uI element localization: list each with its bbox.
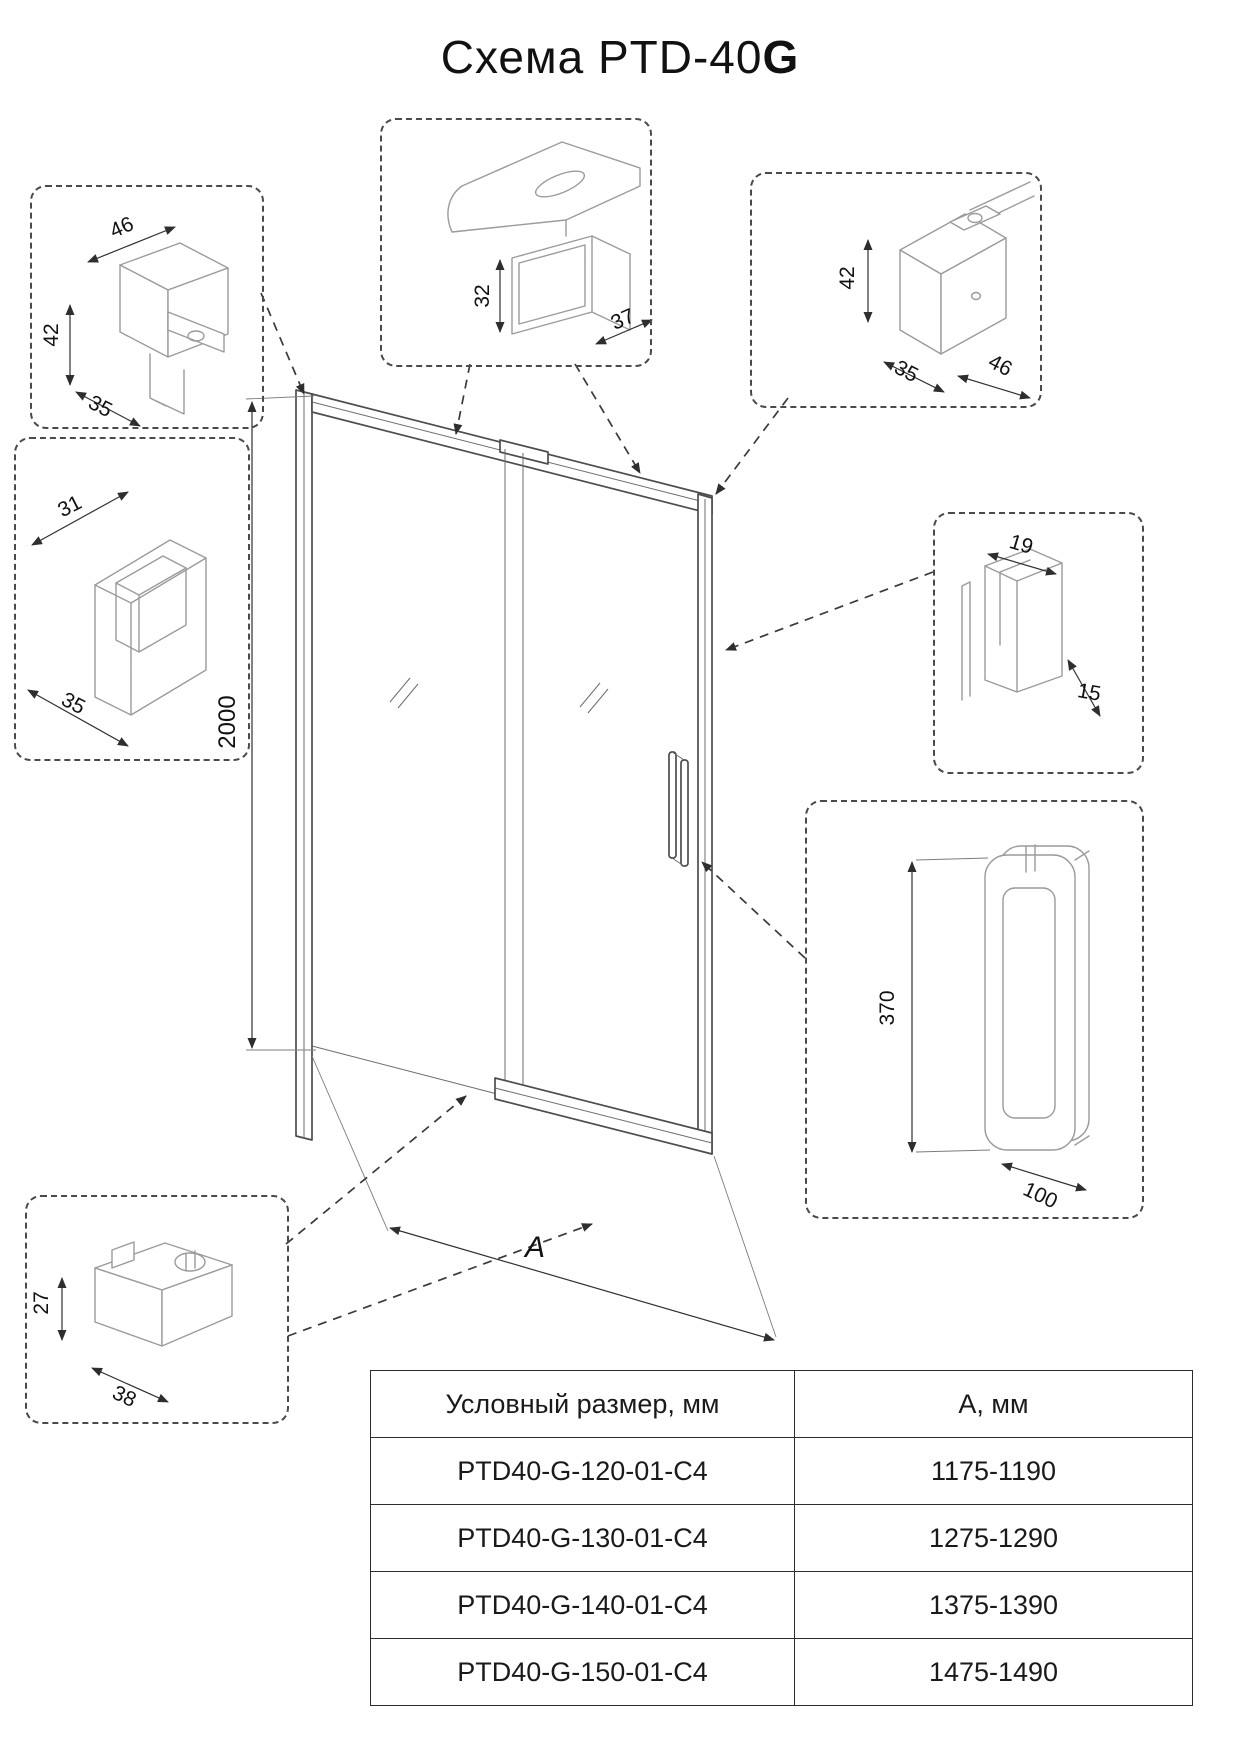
main-door-drawing xyxy=(296,390,712,1154)
table-row: PTD40-G-130-01-C4 1275-1290 xyxy=(371,1505,1193,1572)
size-table-header-size: Условный размер, мм xyxy=(371,1371,795,1438)
dim-door-width: А xyxy=(525,1231,545,1265)
model-cell: PTD40-G-140-01-C4 xyxy=(371,1572,795,1639)
dim-guide-height: 27 xyxy=(30,1291,54,1314)
page-title: Схема PTD-40G xyxy=(0,30,1240,84)
range-cell: 1175-1190 xyxy=(795,1438,1193,1505)
table-row: PTD40-G-150-01-C4 1475-1490 xyxy=(371,1639,1193,1706)
size-table-header-row: Условный размер, мм А, мм xyxy=(371,1371,1193,1438)
range-cell: 1375-1390 xyxy=(795,1572,1193,1639)
model-cell: PTD40-G-130-01-C4 xyxy=(371,1505,795,1572)
main-dimensions xyxy=(246,396,776,1340)
dim-bracket-height: 42 xyxy=(836,266,860,289)
schematic-page: Схема PTD-40G 46 42 35 32 37 42 35 46 31… xyxy=(0,0,1240,1755)
detail-box-glass-edge-profile xyxy=(933,512,1144,774)
detail-box-top-rail-profile xyxy=(380,118,652,367)
model-cell: PTD40-G-150-01-C4 xyxy=(371,1639,795,1706)
page-title-model-suffix: G xyxy=(762,31,799,83)
dim-clamp-height: 42 xyxy=(40,323,64,346)
page-title-main: Схема PTD-40 xyxy=(441,31,763,83)
size-table: Условный размер, мм А, мм PTD40-G-120-01… xyxy=(370,1370,1193,1706)
range-cell: 1475-1490 xyxy=(795,1639,1193,1706)
dim-glass-profile-depth: 15 xyxy=(1075,679,1102,707)
table-row: PTD40-G-120-01-C4 1175-1190 xyxy=(371,1438,1193,1505)
size-table-header-a: А, мм xyxy=(795,1371,1193,1438)
range-cell: 1275-1290 xyxy=(795,1505,1193,1572)
dim-handle-height: 370 xyxy=(876,990,900,1025)
detail-box-top-rail-clamp xyxy=(30,185,264,429)
detail-box-door-handle xyxy=(805,800,1144,1219)
table-row: PTD40-G-140-01-C4 1375-1390 xyxy=(371,1572,1193,1639)
dim-door-height: 2000 xyxy=(214,695,242,748)
detail-box-bottom-guide-bracket xyxy=(25,1195,289,1424)
model-cell: PTD40-G-120-01-C4 xyxy=(371,1438,795,1505)
dim-rail-height: 32 xyxy=(471,284,495,307)
